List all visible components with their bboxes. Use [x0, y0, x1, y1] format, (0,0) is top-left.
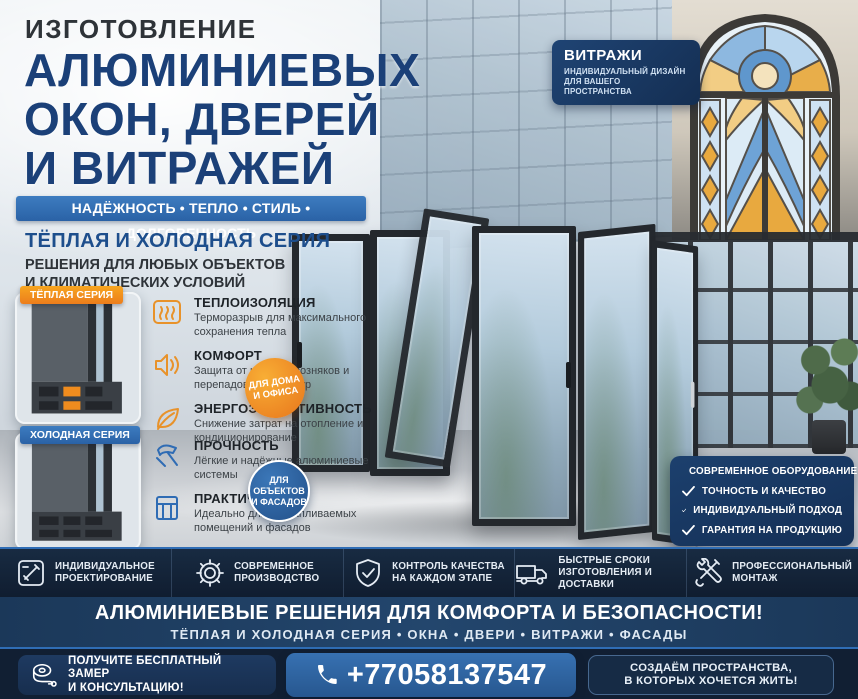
advantage-label: ТОЧНОСТЬ И КАЧЕСТВО — [702, 486, 826, 497]
phone-button[interactable]: +77058137547 — [286, 653, 576, 697]
feature-title: ТЕПЛОИЗОЛЯЦИЯ — [194, 295, 390, 310]
durability-icon — [150, 438, 184, 472]
design-ruler-icon — [16, 558, 46, 588]
tagline-line-2: В КОТОРЫХ ХОЧЕТСЯ ЖИТЬ! — [624, 675, 798, 689]
advantages-panel: СОВРЕМЕННОЕ ОБОРУДОВАНИЕ ТОЧНОСТЬ И КАЧЕ… — [670, 456, 854, 546]
feature-thermal: ТЕПЛОИЗОЛЯЦИЯ Терморазрыв для максимальн… — [150, 295, 390, 339]
service-delivery: БЫСТРЫЕ СРОКИ ИЗГОТОВЛЕНИЯ И ДОСТАВКИ — [514, 549, 686, 597]
vitrazhi-badge: ВИТРАЖИ ИНДИВИДУАЛЬНЫЙ ДИЗАЙН ДЛЯ ВАШЕГО… — [552, 40, 700, 105]
service-label: СОВРЕМЕННОЕ ПРОИЗВОДСТВО — [234, 561, 319, 585]
bifold-door-panel — [578, 224, 655, 540]
cold-series-profile-card — [15, 432, 141, 550]
service-label-line-1: ИНДИВИДУАЛЬНОЕ — [55, 561, 155, 573]
service-label-line-2: ПРОИЗВОДСТВО — [234, 573, 319, 585]
tagline-line-1: СОЗДАЁМ ПРОСТРАНСТВА, — [630, 662, 792, 676]
tools-icon — [693, 558, 723, 588]
truck-icon — [515, 558, 549, 588]
advantage-label: ГАРАНТИЯ НА ПРОДУКЦИЮ — [702, 525, 842, 536]
vitrazhi-badge-sub-1: ИНДИВИДУАЛЬНЫЙ ДИЗАЙН — [564, 67, 688, 77]
shield-check-icon — [353, 558, 383, 588]
service-production: СОВРЕМЕННОЕ ПРОИЗВОДСТВО — [171, 549, 343, 597]
main-title-line-1: АЛЮМИНИЕВЫХ — [24, 46, 420, 95]
slogan-line-1: АЛЮМИНИЕВЫЕ РЕШЕНИЯ ДЛЯ КОМФОРТА И БЕЗОП… — [0, 602, 858, 625]
cta-line-2: И КОНСУЛЬТАЦИЮ! — [68, 682, 264, 696]
feature-title: ПРОЧНОСТЬ — [194, 438, 390, 453]
slogan-line-2: ТЁПЛАЯ И ХОЛОДНАЯ СЕРИЯ • ОКНА • ДВЕРИ •… — [0, 627, 858, 642]
service-label: ИНДИВИДУАЛЬНОЕ ПРОЕКТИРОВАНИЕ — [55, 561, 155, 585]
bifold-door-panel — [472, 226, 576, 526]
warm-profile-cross-section — [17, 294, 139, 422]
series-subtitle-line-1: РЕШЕНИЯ ДЛЯ ЛЮБЫХ ОБЪЕКТОВ — [25, 256, 285, 274]
energy-efficiency-icon — [150, 401, 184, 435]
advantage-item: ИНДИВИДУАЛЬНЫЙ ПОДХОД — [682, 505, 842, 516]
plant-pot — [812, 420, 846, 454]
comfort-icon — [150, 348, 184, 382]
objects-facades-badge: ДЛЯ ОБЪЕКТОВ И ФАСАДОВ — [248, 460, 310, 522]
warm-series-tag: ТЁПЛАЯ СЕРИЯ — [20, 286, 123, 304]
stained-glass-window — [672, 0, 858, 240]
plant — [794, 330, 858, 430]
feature-title: КОМФОРТ — [194, 348, 390, 363]
service-label-line-1: ПРОФЕССИОНАЛЬНЫЙ — [732, 561, 852, 573]
footer-bar: ПОЛУЧИТЕ БЕСПЛАТНЫЙ ЗАМЕР И КОНСУЛЬТАЦИЮ… — [0, 647, 858, 699]
service-label-line-1: БЫСТРЫЕ СРОКИ — [558, 555, 686, 567]
main-title-line-3: И ВИТРАЖЕЙ — [24, 144, 420, 193]
phone-number: +77058137547 — [347, 659, 547, 692]
check-icon — [682, 525, 695, 536]
main-title: АЛЮМИНИЕВЫХ ОКОН, ДВЕРЕЙ И ВИТРАЖЕЙ — [24, 46, 420, 193]
feature-desc: Терморазрыв для максимального сохранения… — [194, 312, 390, 339]
cta-text: ПОЛУЧИТЕ БЕСПЛАТНЫЙ ЗАМЕР И КОНСУЛЬТАЦИЮ… — [68, 655, 264, 696]
objects-facades-badge-line-3: И ФАСАДОВ — [251, 497, 307, 508]
cta-line-1: ПОЛУЧИТЕ БЕСПЛАТНЫЙ ЗАМЕР — [68, 655, 264, 682]
warm-series-profile-card — [15, 292, 141, 424]
poster: ИЗГОТОВЛЕНИЕ АЛЮМИНИЕВЫХ ОКОН, ДВЕРЕЙ И … — [0, 0, 858, 699]
tagline-pill: СОЗДАЁМ ПРОСТРАНСТВА, В КОТОРЫХ ХОЧЕТСЯ … — [588, 655, 834, 695]
check-icon — [682, 486, 695, 497]
service-label-line-1: СОВРЕМЕННОЕ — [234, 561, 319, 573]
advantage-label: СОВРЕМЕННОЕ ОБОРУДОВАНИЕ — [689, 466, 857, 477]
tape-measure-icon — [30, 661, 58, 689]
cold-series-tag: ХОЛОДНАЯ СЕРИЯ — [20, 426, 140, 444]
service-label-line-2: МОНТАЖ — [732, 573, 852, 585]
advantage-item: ТОЧНОСТЬ И КАЧЕСТВО — [682, 486, 842, 497]
thermal-insulation-icon — [150, 295, 184, 329]
service-label-line-2: НА КАЖДОМ ЭТАПЕ — [392, 573, 505, 585]
vitrazhi-badge-title: ВИТРАЖИ — [564, 47, 688, 64]
check-icon — [682, 505, 686, 516]
service-label: КОНТРОЛЬ КАЧЕСТВА НА КАЖДОМ ЭТАПЕ — [392, 561, 505, 585]
advantage-label: ИНДИВИДУАЛЬНЫЙ ПОДХОД — [693, 505, 842, 516]
stained-glass-wall — [672, 0, 858, 240]
objects-facades-badge-line-2: ОБЪЕКТОВ — [253, 486, 304, 497]
slogan-band: АЛЮМИНИЕВЫЕ РЕШЕНИЯ ДЛЯ КОМФОРТА И БЕЗОП… — [0, 597, 858, 647]
service-label-line-2: ИЗГОТОВЛЕНИЯ И ДОСТАВКИ — [558, 567, 686, 591]
practicality-icon — [150, 491, 184, 525]
services-strip: ИНДИВИДУАЛЬНОЕ ПРОЕКТИРОВАНИЕ СОВРЕМЕННО… — [0, 547, 858, 597]
vitrazhi-badge-sub-2: ДЛЯ ВАШЕГО ПРОСТРАНСТВА — [564, 77, 688, 97]
service-installation: ПРОФЕССИОНАЛЬНЫЙ МОНТАЖ — [686, 549, 858, 597]
service-label-line-1: КОНТРОЛЬ КАЧЕСТВА — [392, 561, 505, 573]
feature-thermal-text: ТЕПЛОИЗОЛЯЦИЯ Терморазрыв для максимальн… — [194, 295, 390, 339]
free-measure-cta-button[interactable]: ПОЛУЧИТЕ БЕСПЛАТНЫЙ ЗАМЕР И КОНСУЛЬТАЦИЮ… — [18, 655, 276, 695]
main-title-line-2: ОКОН, ДВЕРЕЙ — [24, 95, 420, 144]
advantage-item: ГАРАНТИЯ НА ПРОДУКЦИЮ — [682, 525, 842, 536]
service-design: ИНДИВИДУАЛЬНОЕ ПРОЕКТИРОВАНИЕ — [0, 549, 171, 597]
objects-facades-badge-line-1: ДЛЯ — [269, 475, 288, 486]
service-quality: КОНТРОЛЬ КАЧЕСТВА НА КАЖДОМ ЭТАПЕ — [343, 549, 515, 597]
values-ribbon: НАДЁЖНОСТЬ • ТЕПЛО • СТИЛЬ • ДОЛГОВЕЧНОС… — [16, 196, 366, 221]
service-label-line-2: ПРОЕКТИРОВАНИЕ — [55, 573, 155, 585]
gear-icon — [195, 558, 225, 588]
cold-profile-cross-section — [17, 434, 139, 548]
series-title: ТЁПЛАЯ И ХОЛОДНАЯ СЕРИЯ — [25, 230, 330, 253]
service-label: ПРОФЕССИОНАЛЬНЫЙ МОНТАЖ — [732, 561, 852, 585]
service-label: БЫСТРЫЕ СРОКИ ИЗГОТОВЛЕНИЯ И ДОСТАВКИ — [558, 555, 686, 591]
kicker-text: ИЗГОТОВЛЕНИЕ — [25, 14, 257, 45]
phone-icon — [315, 663, 339, 687]
advantage-item: СОВРЕМЕННОЕ ОБОРУДОВАНИЕ — [682, 466, 842, 477]
